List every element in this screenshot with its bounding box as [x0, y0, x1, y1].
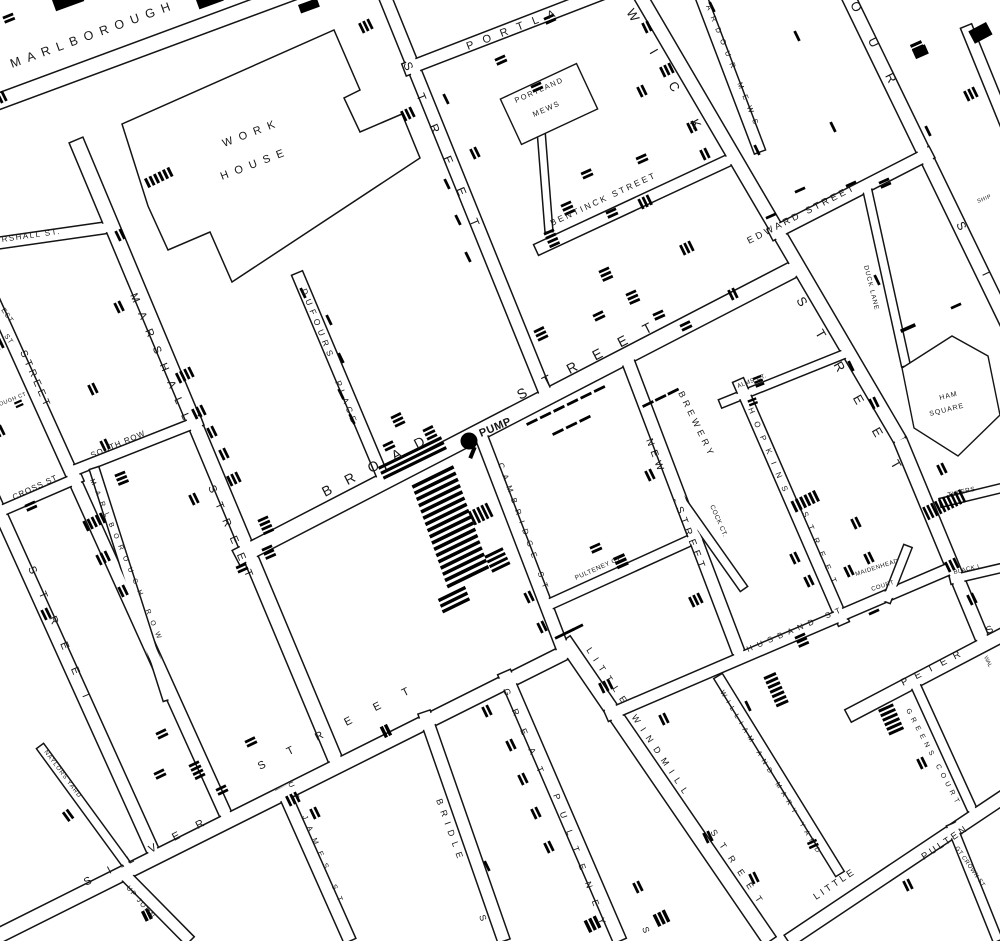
- street-name-label: DUCK LANE: [862, 265, 880, 312]
- death-bar-group: [843, 564, 854, 577]
- death-bar-group: [688, 592, 704, 607]
- death-bar: [593, 385, 605, 393]
- death-bar: [579, 415, 591, 423]
- street-name-label: LITTLE WINDMILL: [584, 646, 694, 802]
- street-name-label: PETER: [899, 646, 969, 689]
- street-name-label: SILVER: [82, 809, 223, 889]
- death-bar-group: [636, 84, 647, 97]
- death-bar: [829, 121, 836, 132]
- street-fill-south-row: [70, 417, 202, 475]
- death-bar-group: [863, 551, 874, 564]
- death-bar-group: [552, 415, 591, 436]
- death-bar-group: [218, 447, 229, 460]
- death-bar-group: [679, 240, 695, 255]
- death-bar: [793, 30, 800, 41]
- death-bar-group: [114, 471, 129, 486]
- death-bar-group: [794, 186, 805, 193]
- street-fill-pulteney-court: [548, 532, 702, 608]
- death-bar-group: [0, 424, 6, 437]
- street-name-label: OUR: [847, 0, 913, 112]
- death-bar-group: [592, 310, 605, 321]
- death-bar: [552, 428, 564, 436]
- death-bar-group: [963, 86, 979, 101]
- death-bar-group: [113, 300, 124, 313]
- death-bar: [566, 398, 578, 406]
- death-bar-group: [763, 672, 788, 707]
- death-bar-group: [625, 289, 640, 304]
- death-bar-group: [2, 13, 15, 24]
- street-fill-greens-court: [912, 682, 979, 818]
- death-bar-group: [325, 314, 332, 325]
- street-fill-bridle-lane: [420, 712, 508, 941]
- building: [298, 0, 320, 13]
- death-bar-group: [924, 125, 931, 136]
- street-fill-husband-street: [606, 563, 956, 720]
- death-bar-group: [636, 153, 649, 164]
- death-bar-group: [155, 728, 168, 739]
- street-name-label: OUGH CT: [0, 391, 28, 407]
- death-bar: [16, 403, 24, 408]
- death-bar-group: [188, 492, 199, 505]
- building: [52, 0, 84, 11]
- death-bar-group: [658, 712, 669, 725]
- death-bar-group: [484, 547, 510, 572]
- death-bar-group: [523, 590, 534, 603]
- death-bar-group: [412, 465, 490, 588]
- street-fill-cambridge-street: [474, 428, 568, 652]
- death-bar-group: [494, 54, 507, 65]
- death-bar: [526, 418, 538, 426]
- street-name-label: PORTLA: [465, 4, 566, 52]
- death-bar-group: [505, 738, 516, 751]
- death-bar: [539, 412, 551, 420]
- street-name-label: UP JAMES ST: [286, 780, 348, 910]
- death-bar-group: [517, 772, 528, 785]
- death-bar-group: [850, 516, 861, 529]
- death-bar-group: [936, 462, 947, 475]
- street-fill-upper-john-street: [118, 868, 192, 941]
- death-bar: [580, 392, 592, 400]
- death-bar-group: [530, 806, 541, 819]
- street-fill-berwick-street: [895, 438, 991, 651]
- death-bar: [794, 186, 805, 193]
- death-bar-group: [878, 703, 904, 735]
- street-name-label: CAMBRIDGE ST: [496, 462, 552, 596]
- street-name-label: S: [477, 913, 488, 922]
- death-bar-group: [598, 266, 613, 281]
- death-bar-group: [829, 121, 836, 132]
- death-bar: [572, 624, 583, 631]
- death-bar: [553, 405, 565, 413]
- street-name-label: S: [640, 925, 651, 934]
- street-name-label: SHIP: [977, 194, 993, 205]
- map-canvas: MARLBOROUGHRSHALL ST.WORKHOUSESTREETPORT…: [0, 0, 1000, 941]
- death-bar: [924, 125, 931, 136]
- death-bar-group: [454, 214, 461, 225]
- death-bar: [0, 424, 6, 435]
- street-name-label: STREET: [25, 564, 100, 719]
- street-name-label: WILLIAM AND MARY YARD: [718, 689, 823, 858]
- death-bar-group: [442, 93, 449, 104]
- death-bar-group: [950, 302, 961, 309]
- street-name-label: BREWERY: [676, 389, 717, 459]
- street-name-label: GREAT: [501, 687, 551, 788]
- death-bar: [442, 93, 449, 104]
- death-bar-group: [644, 468, 655, 481]
- street-name-label: MARSHALL: [127, 291, 196, 431]
- street-name-label: HOPKINS: [746, 406, 793, 501]
- death-bar-group: [153, 768, 166, 779]
- death-bar-group: [789, 551, 800, 564]
- street-name-label: WAL: [982, 655, 993, 668]
- death-bar-group: [793, 30, 800, 41]
- street-name-label: COCK CT.: [708, 504, 728, 538]
- death-bar-group: [803, 574, 814, 587]
- death-bar-group: [632, 880, 643, 893]
- building: [196, 0, 224, 9]
- pump-layer: [461, 433, 478, 460]
- death-bar-group: [469, 146, 480, 159]
- death-bar-group: [653, 909, 671, 927]
- death-bar-group: [62, 809, 74, 822]
- death-bar-group: [390, 412, 405, 428]
- death-bar: [454, 214, 461, 225]
- death-bar-group: [916, 756, 927, 769]
- death-bar-group: [589, 542, 602, 553]
- pump-icon: [461, 433, 478, 450]
- death-bar-group: [87, 382, 98, 395]
- street-name-label: PULTENEY: [551, 792, 612, 937]
- death-bar: [565, 422, 577, 430]
- snow-cholera-map-1854: MARLBOROUGHRSHALL ST.WORKHOUSESTREETPORT…: [0, 0, 1000, 941]
- death-bar: [950, 302, 961, 309]
- death-bar: [655, 394, 667, 402]
- death-bar-group: [533, 326, 548, 342]
- death-bar-group: [244, 736, 257, 747]
- death-bar-group: [358, 18, 374, 33]
- street-name-label: HUSBAND ST: [745, 604, 847, 654]
- death-bar-group: [543, 840, 554, 853]
- death-bar: [464, 251, 471, 262]
- death-bar-group: [481, 704, 492, 717]
- death-bar-group: [464, 251, 471, 262]
- death-bar: [325, 314, 332, 325]
- street-name-label: NAYLORS YARD: [42, 750, 82, 800]
- death-bar-group: [438, 586, 470, 614]
- death-bar-group: [581, 168, 594, 179]
- death-bar-group: [902, 878, 913, 891]
